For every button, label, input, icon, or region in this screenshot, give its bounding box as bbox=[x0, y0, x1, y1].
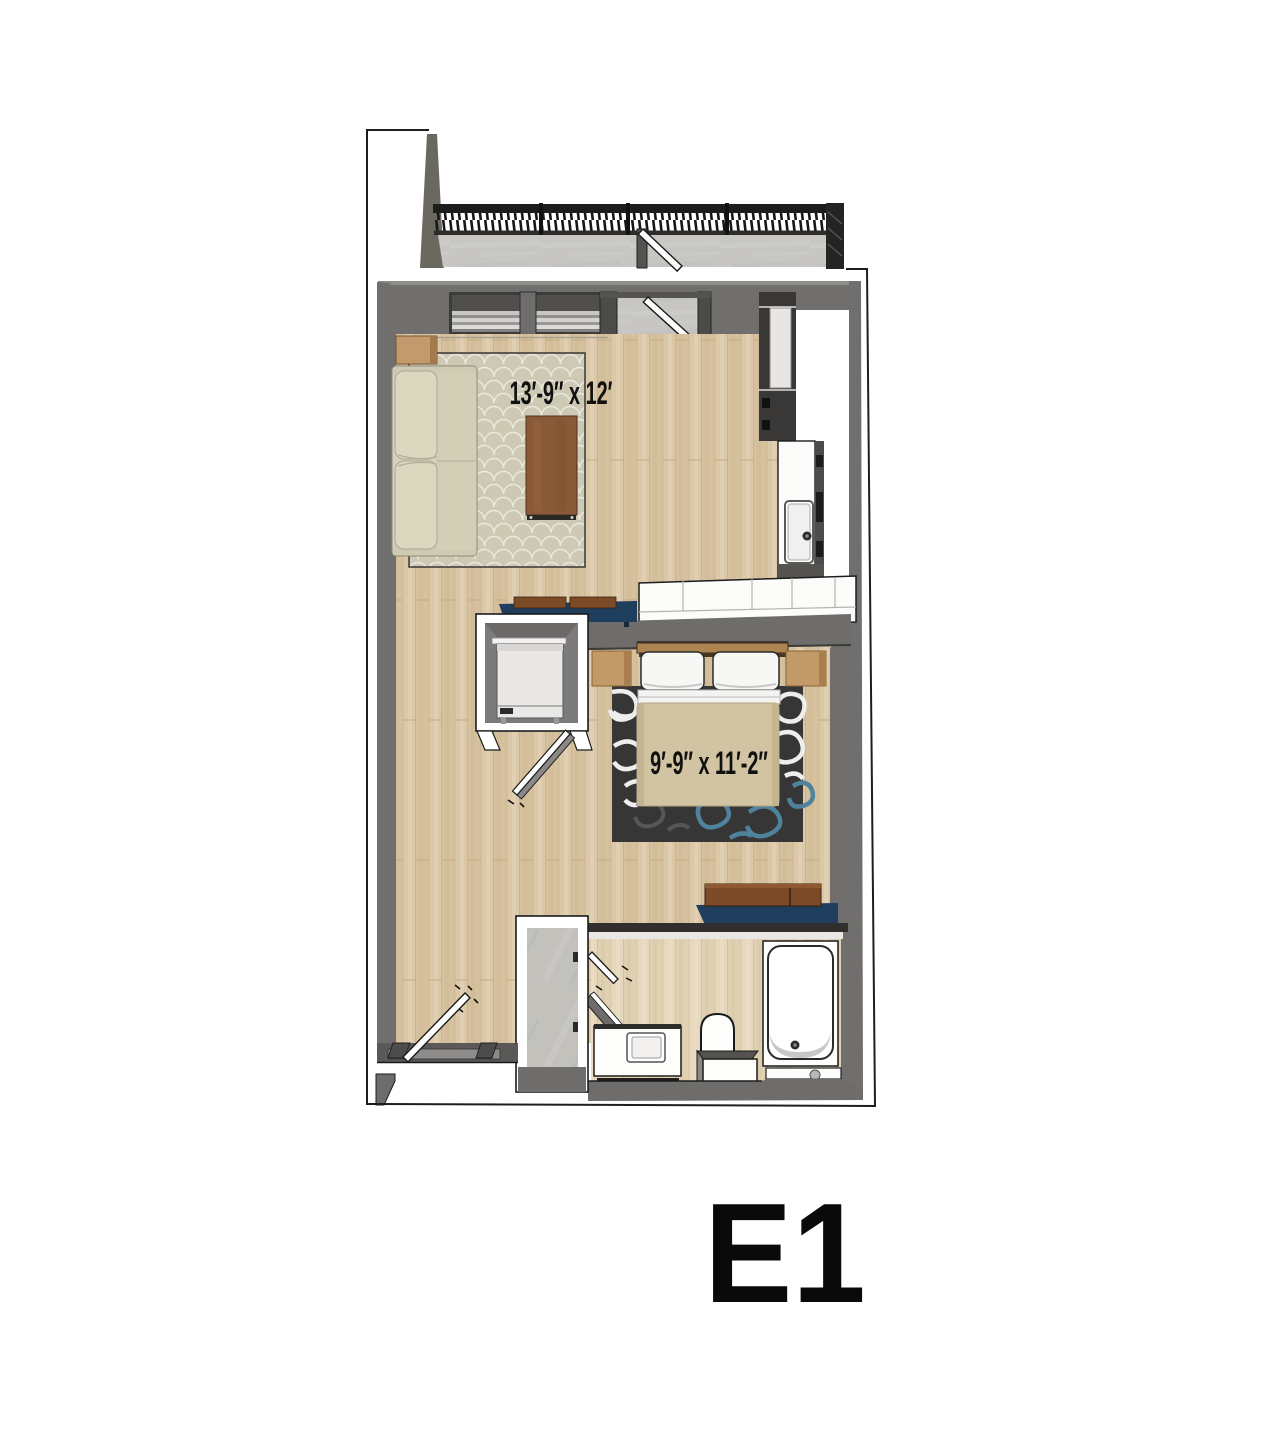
svg-text:13′-9″ x 12′: 13′-9″ x 12′ bbox=[510, 375, 613, 411]
svg-text:9′-9″ x 11′-2″: 9′-9″ x 11′-2″ bbox=[650, 745, 768, 781]
svg-text:E1: E1 bbox=[704, 1175, 866, 1333]
